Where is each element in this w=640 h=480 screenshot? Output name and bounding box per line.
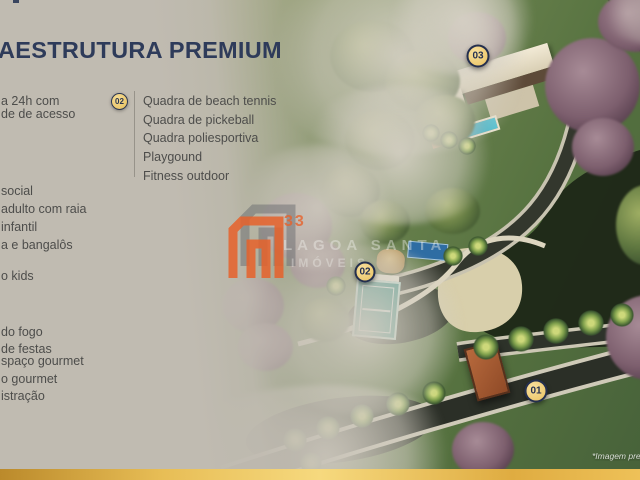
amenity-item: Quadra poliesportiva <box>143 131 258 145</box>
amenity-fragment: adulto com raia <box>1 202 86 216</box>
clipped-top-mark <box>13 0 19 3</box>
amenity-fragment: spaço gourmet <box>1 354 84 368</box>
amenity-fragment: infantil <box>1 220 37 234</box>
list-divider <box>134 91 135 177</box>
image-disclaimer: *Imagem prel <box>592 451 640 461</box>
amenity-fragment: a e bangalôs <box>1 238 73 252</box>
amenity-fragment: social <box>1 184 33 198</box>
list-badge-02: 02 <box>111 93 128 110</box>
amenity-fragment: o gourmet <box>1 372 57 386</box>
amenity-fragment: do fogo <box>1 325 43 339</box>
watermark-number: 33 <box>284 213 306 231</box>
map-marker-02: 02 <box>355 262 376 283</box>
amenity-fragment: o kids <box>1 269 34 283</box>
amenity-item: Playgound <box>143 150 202 164</box>
amenity-fragment: de de acesso <box>1 107 75 121</box>
page-title: AESTRUTURA PREMIUM <box>0 37 282 64</box>
slide: 33 LAGOA SANTA IMÓVEIS 03 02 01 AESTRUTU… <box>0 0 640 480</box>
amenity-fragment: a 24h com <box>1 94 59 108</box>
amenity-item: Quadra de pickeball <box>143 113 254 127</box>
amenity-fragment: istração <box>1 389 45 403</box>
amenity-item: Fitness outdoor <box>143 169 229 183</box>
footer-gold-bar <box>0 469 640 480</box>
amenity-item: Quadra de beach tennis <box>143 94 276 108</box>
watermark-brand: LAGOA SANTA <box>283 237 446 254</box>
map-marker-01: 01 <box>525 380 548 403</box>
map-marker-03: 03 <box>467 45 490 68</box>
